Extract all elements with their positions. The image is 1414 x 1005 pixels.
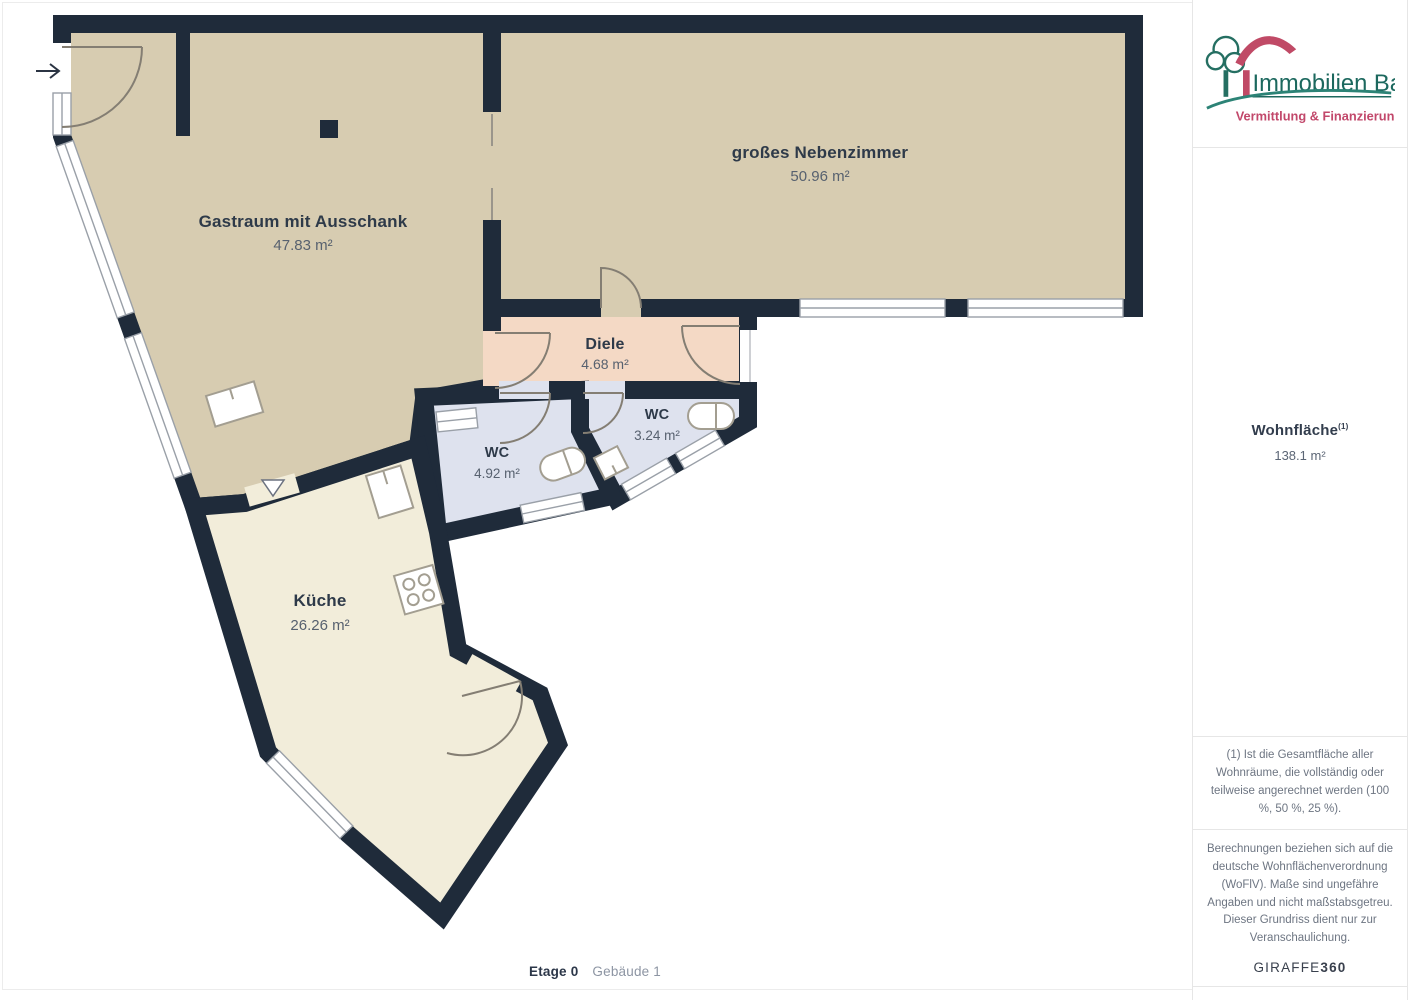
disclaimer-panel: Berechnungen beziehen sich auf die deuts…: [1193, 830, 1407, 987]
logo-panel: Immobilien Bart Vermittlung & Finanzieru…: [1193, 0, 1407, 148]
room-nebenzimmer: [492, 24, 1134, 308]
room-label: Diele: [585, 336, 624, 353]
room-label: Gastraum mit Ausschank: [199, 212, 408, 231]
room-area: 4.68 m²: [581, 356, 629, 372]
living-area-title: Wohnfläche(1): [1251, 422, 1348, 439]
room-area: 47.83 m²: [273, 237, 332, 254]
room-label: WC: [645, 407, 670, 423]
window: [800, 299, 945, 317]
wall-stub: [176, 24, 190, 136]
living-area-value: 138.1 m²: [1274, 448, 1325, 463]
roof-icon: [1235, 36, 1296, 66]
window: [53, 93, 71, 135]
disclaimer-text: Berechnungen beziehen sich auf die deuts…: [1203, 841, 1397, 948]
living-area-panel: Wohnfläche(1) 138.1 m²: [1193, 148, 1407, 737]
chimney-icon: [1243, 70, 1250, 97]
company-logo: Immobilien Bart Vermittlung & Finanzieru…: [1205, 20, 1395, 128]
gap-wc-gross-door: [499, 381, 549, 399]
interior-window: [436, 408, 478, 432]
window: [968, 299, 1123, 317]
room-label: großes Nebenzimmer: [732, 143, 909, 162]
gap-diele-right-door: [740, 330, 758, 382]
plan-caption: Etage 0Gebäude 1: [0, 964, 1190, 979]
building-label: Gebäude 1: [592, 964, 661, 979]
wall-pillar: [320, 120, 338, 138]
room-label: Küche: [294, 591, 347, 610]
gap-wc-klein-door: [585, 381, 625, 399]
toilet-icon: [688, 403, 734, 429]
room-area: 26.26 m²: [290, 617, 349, 634]
footnote-text: (1) Ist die Gesamtfläche aller Wohnräume…: [1206, 747, 1394, 818]
floor-label: Etage 0: [529, 964, 578, 979]
floorplan-svg: Gastraum mit Ausschank 47.83 m² großes N…: [0, 0, 1190, 1000]
room-area: 50.96 m²: [790, 168, 849, 185]
floorplan: Gastraum mit Ausschank 47.83 m² großes N…: [0, 0, 1190, 1000]
gap-nebenzimmer-door: [601, 299, 641, 317]
sidebar: Immobilien Bart Vermittlung & Finanzieru…: [1192, 0, 1408, 1000]
footnote-panel: (1) Ist die Gesamtfläche aller Wohnräume…: [1193, 737, 1407, 830]
giraffe360-brand: GIRAFFE360: [1253, 960, 1346, 975]
room-area: 3.24 m²: [634, 428, 680, 443]
gap-diele-left-door: [483, 331, 501, 386]
tree-icon: [1207, 36, 1244, 96]
room-label: WC: [485, 445, 510, 461]
room-area: 4.92 m²: [474, 466, 520, 481]
footnote-marker: (1): [1338, 422, 1348, 431]
logo-subtitle: Vermittlung & Finanzierung: [1236, 108, 1395, 123]
